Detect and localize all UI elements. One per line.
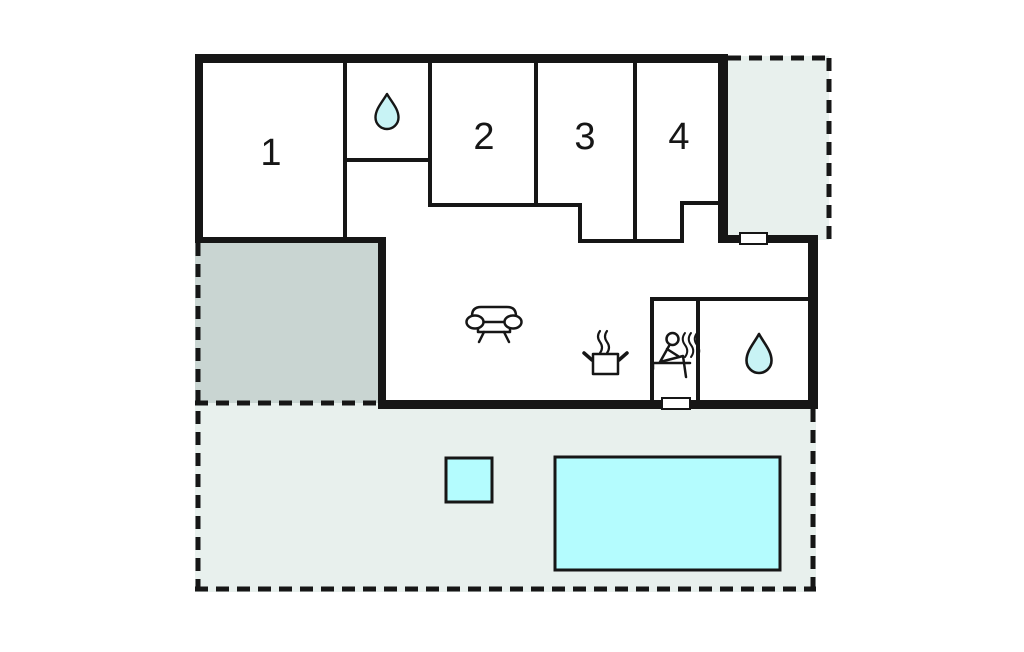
sofa-arm-right [505,316,522,329]
wall-outer-left [195,54,203,243]
swimming-pool [555,457,780,570]
floor-plan: 1 2 3 4 [0,0,1024,652]
door-symbol-terrace [662,398,690,409]
wall-room1-bottom [195,237,386,243]
room-1-label: 1 [260,132,281,174]
floor-plan-svg: 1 2 3 4 [0,0,1024,652]
wall-bathroom-top-bottom [343,158,432,162]
living-wing-floor [378,237,818,409]
wall-outer-top [195,54,728,63]
wall-outer-south [378,400,818,409]
wall-room3-room4-divider [633,54,637,243]
wall-rooms34-bottom [578,239,684,243]
wall-bathroom-top-right [428,54,432,207]
sofa-arm-left [467,316,484,329]
carport-area [195,240,386,403]
wall-room1-right [343,54,347,237]
hot-tub [446,458,492,502]
wall-step-left [578,203,582,243]
wall-room4-bottom-right [680,201,728,205]
wall-east-living [808,237,818,409]
room-4-label: 4 [668,116,689,158]
wall-sauna-left [650,297,654,404]
wall-step-right [680,201,684,243]
wall-room2-room3-divider [534,54,538,205]
door-symbol-entry [740,233,767,244]
pot-body [593,354,618,374]
wall-west-living [378,237,386,409]
room-2-label: 2 [473,116,494,158]
wall-outer-east-upper [718,54,728,240]
side-terrace-area [728,56,829,240]
wall-sauna-top [650,297,808,301]
sauna-person-head [667,333,679,345]
room-3-label: 3 [574,116,595,158]
wall-room2-bottom [428,203,582,207]
